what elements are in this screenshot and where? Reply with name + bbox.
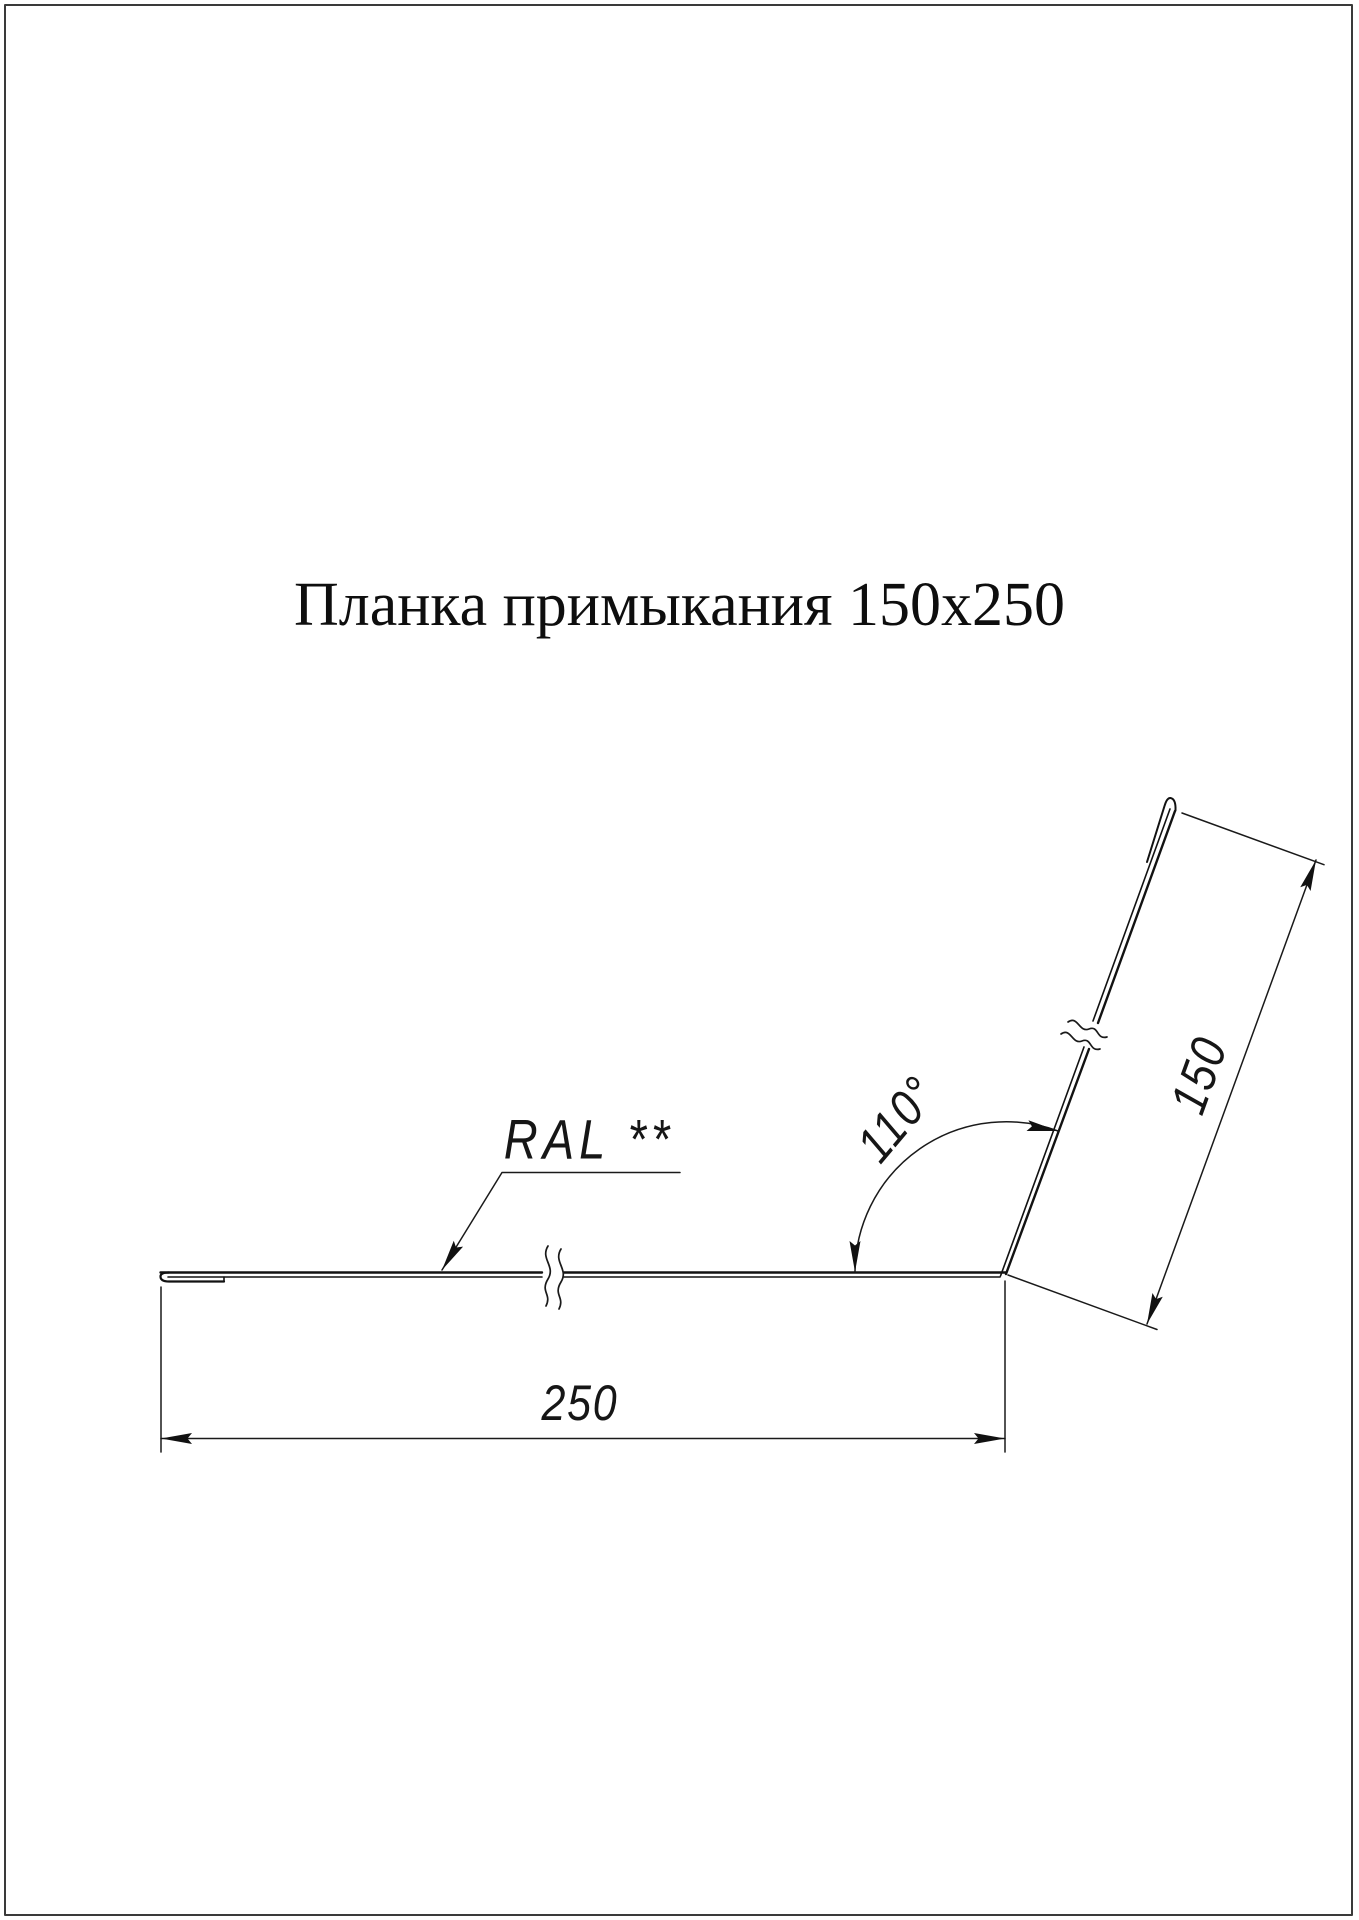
flange-break-mark xyxy=(1068,1020,1107,1037)
ral-leader xyxy=(442,1173,680,1271)
strip-break-mark xyxy=(545,1246,550,1306)
dim-150-arrow-bottom xyxy=(1142,1293,1163,1326)
angle-arrow-base xyxy=(850,1241,861,1272)
drawing-title: Планка примыкания 150x250 xyxy=(0,572,1359,638)
flange-break-mark xyxy=(1061,1032,1100,1049)
dim-150-extension-bottom xyxy=(1008,1275,1157,1330)
dim-250-arrow-left xyxy=(161,1433,192,1444)
ral-leader-line xyxy=(442,1173,680,1271)
strip-break-mark xyxy=(558,1249,563,1309)
flange-outer-line xyxy=(1006,811,1175,1274)
base-length-label: 250 xyxy=(542,1374,619,1432)
dim-150-extension-top xyxy=(1182,813,1324,865)
arrowheads xyxy=(161,858,1321,1444)
ral-leader-arrow xyxy=(437,1241,463,1273)
flange-inner-line xyxy=(1001,809,1171,1276)
technical-drawing xyxy=(0,0,1359,1920)
part-outline xyxy=(161,798,1176,1282)
dimension-150 xyxy=(1008,813,1324,1330)
dim-250-arrow-right xyxy=(974,1433,1005,1444)
flange-hem xyxy=(1147,798,1176,862)
sheet-frame xyxy=(5,5,1352,1915)
drawing-sheet: Планка примыкания 150x250 RAL ** 110° 15… xyxy=(0,0,1359,1920)
ral-color-label: RAL ** xyxy=(504,1107,675,1172)
